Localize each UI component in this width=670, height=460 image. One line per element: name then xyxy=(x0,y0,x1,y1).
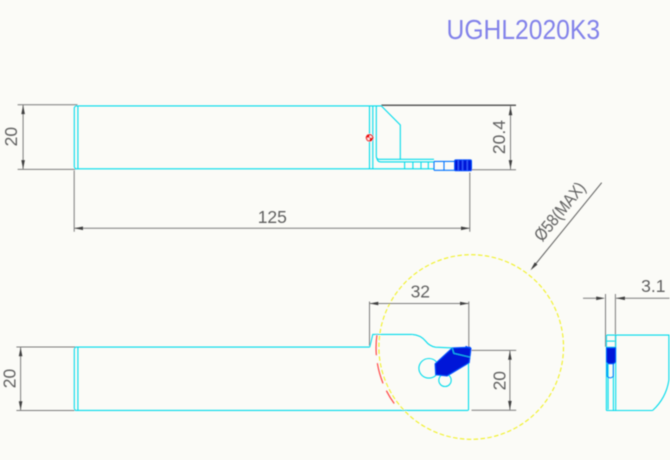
svg-text:3.1: 3.1 xyxy=(641,276,665,296)
svg-text:125: 125 xyxy=(258,207,287,227)
svg-text:20: 20 xyxy=(0,369,20,389)
svg-text:20: 20 xyxy=(1,127,21,147)
svg-text:20: 20 xyxy=(490,371,510,391)
svg-text:20.4: 20.4 xyxy=(489,120,509,154)
svg-text:UGHL2020K3: UGHL2020K3 xyxy=(447,14,601,45)
svg-text:32: 32 xyxy=(411,281,430,301)
